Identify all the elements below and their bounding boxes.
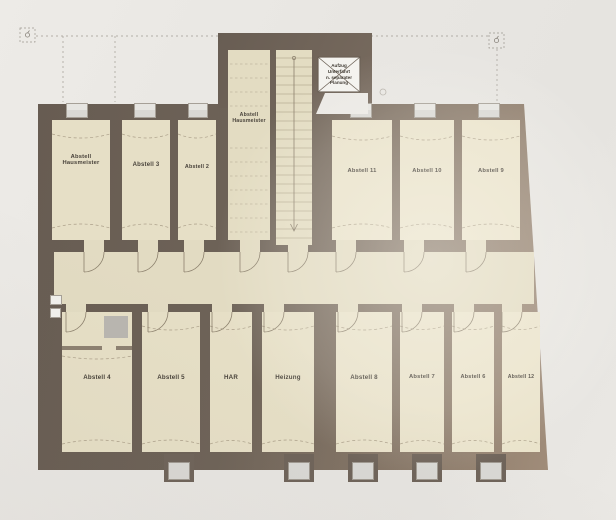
- door-swing-arcs: [66, 312, 522, 332]
- elevator-note: Aufzug Unterfahrt n. separater Planung: [316, 57, 362, 92]
- floor-plan-photo: Abstell Hausmeister Abstell 3 Abstell 2 …: [0, 0, 616, 520]
- door-swing-arcs: [84, 252, 486, 272]
- stair-direction-line: [291, 58, 298, 231]
- plan-symbols-layer: [0, 0, 616, 520]
